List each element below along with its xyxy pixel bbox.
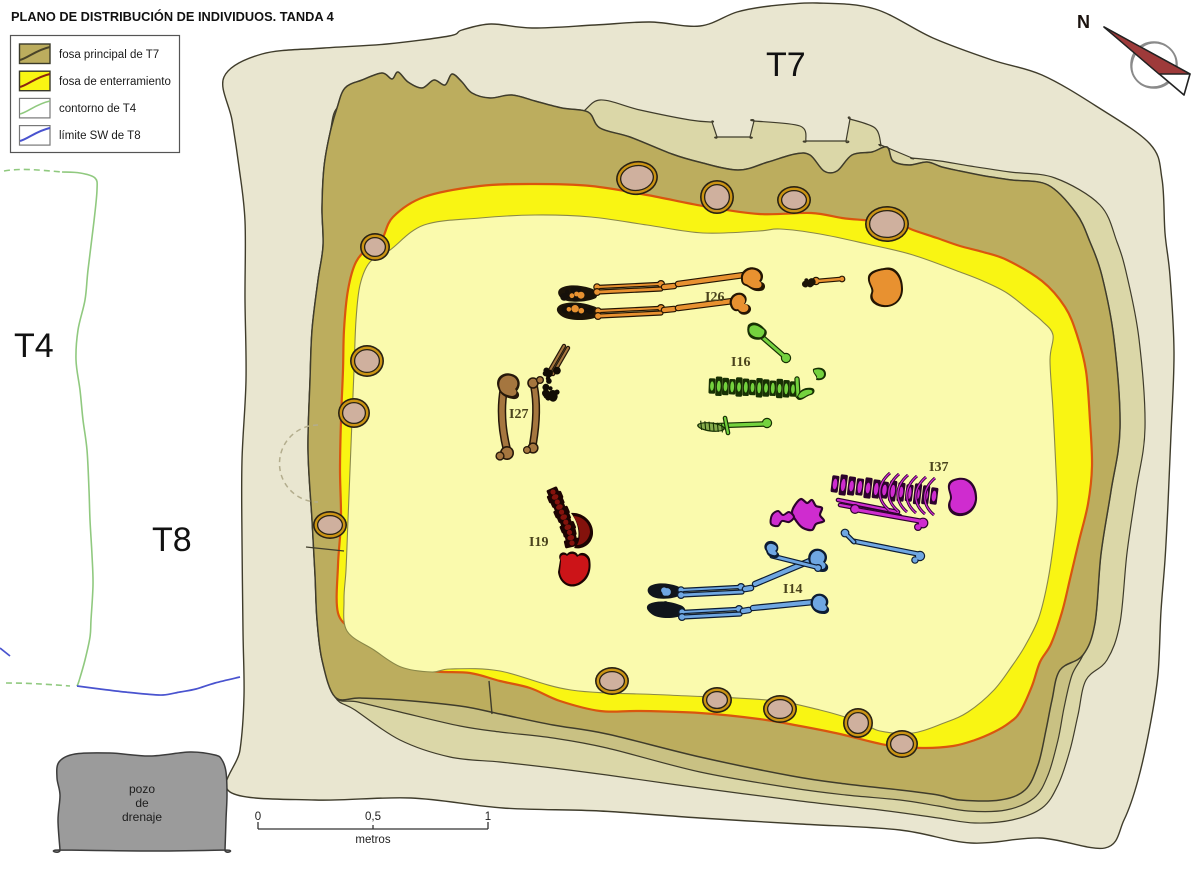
svg-text:PLANO DE DISTRIBUCIÓN DE INDIV: PLANO DE DISTRIBUCIÓN DE INDIVIDUOS. TAN…	[11, 9, 335, 24]
svg-text:pozo: pozo	[129, 782, 155, 796]
svg-text:I26: I26	[705, 290, 724, 305]
svg-text:I14: I14	[783, 582, 802, 597]
svg-text:0,5: 0,5	[365, 811, 381, 823]
svg-text:T8: T8	[152, 521, 192, 559]
svg-text:metros: metros	[355, 834, 390, 846]
svg-text:T4: T4	[14, 327, 54, 365]
svg-text:I37: I37	[929, 460, 948, 475]
svg-text:I27: I27	[509, 407, 528, 422]
svg-text:de: de	[135, 796, 149, 810]
svg-text:contorno de T4: contorno de T4	[59, 103, 137, 115]
svg-text:límite SW de T8: límite SW de T8	[59, 130, 141, 142]
svg-text:I16: I16	[731, 355, 750, 370]
svg-text:drenaje: drenaje	[122, 810, 162, 824]
svg-text:N: N	[1077, 12, 1090, 32]
svg-text:fosa principal de T7: fosa principal de T7	[59, 49, 159, 61]
svg-text:fosa de enterramiento: fosa de enterramiento	[59, 76, 171, 88]
svg-text:T7: T7	[766, 46, 806, 84]
svg-text:1: 1	[485, 811, 491, 823]
svg-text:0: 0	[255, 811, 261, 823]
svg-text:I19: I19	[529, 535, 548, 550]
